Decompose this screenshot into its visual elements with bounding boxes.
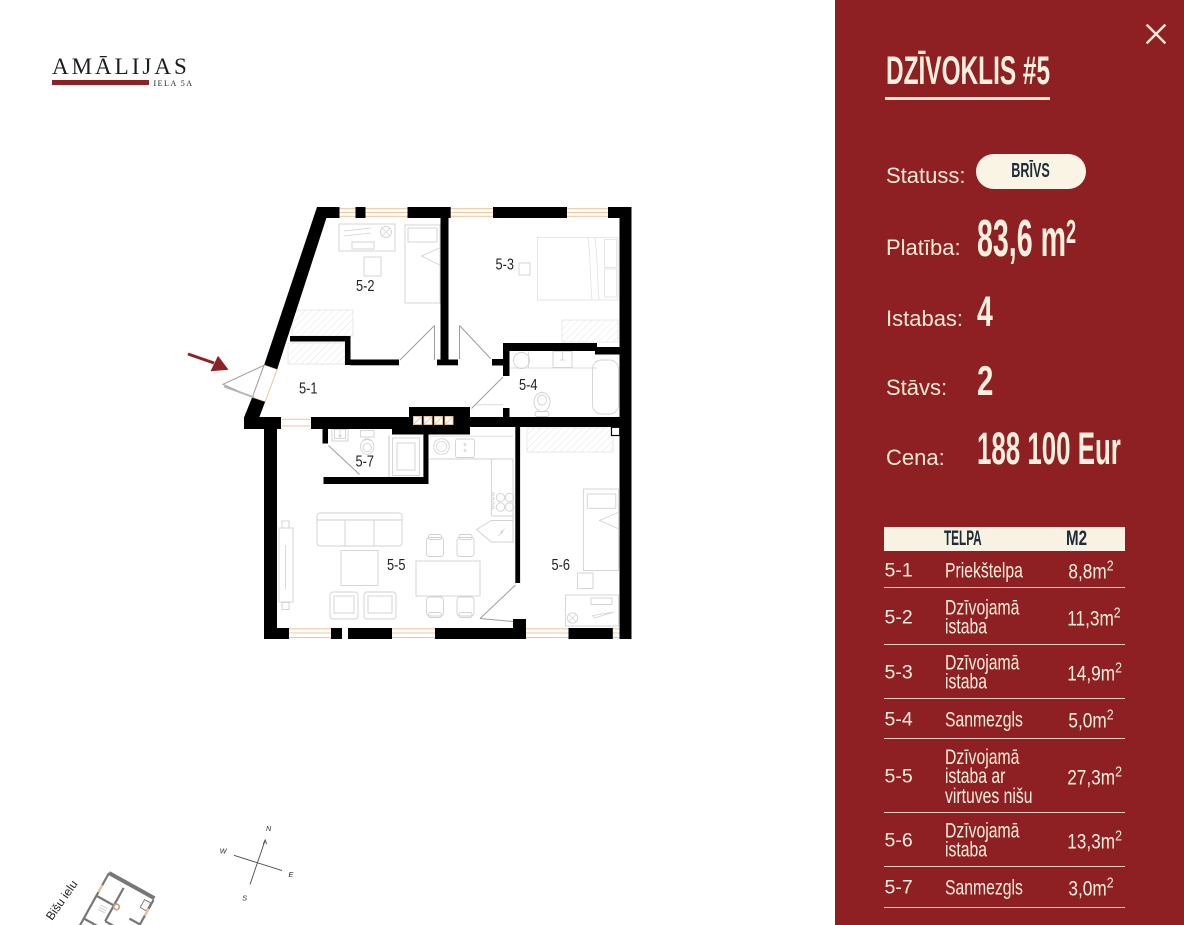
svg-text:E: E bbox=[289, 870, 294, 879]
svg-text:5-4: 5-4 bbox=[519, 377, 538, 394]
svg-text:Bišu ielu: Bišu ielu bbox=[43, 878, 80, 923]
svg-text:5-7: 5-7 bbox=[356, 454, 375, 471]
svg-text:N: N bbox=[266, 824, 272, 833]
svg-text:5-3: 5-3 bbox=[496, 257, 515, 274]
svg-text:5-1: 5-1 bbox=[299, 381, 318, 398]
svg-text:W: W bbox=[220, 847, 228, 856]
svg-text:5-2: 5-2 bbox=[356, 278, 375, 295]
svg-text:S: S bbox=[242, 893, 247, 902]
svg-text:5-6: 5-6 bbox=[552, 557, 571, 574]
svg-text:5-5: 5-5 bbox=[387, 557, 406, 574]
